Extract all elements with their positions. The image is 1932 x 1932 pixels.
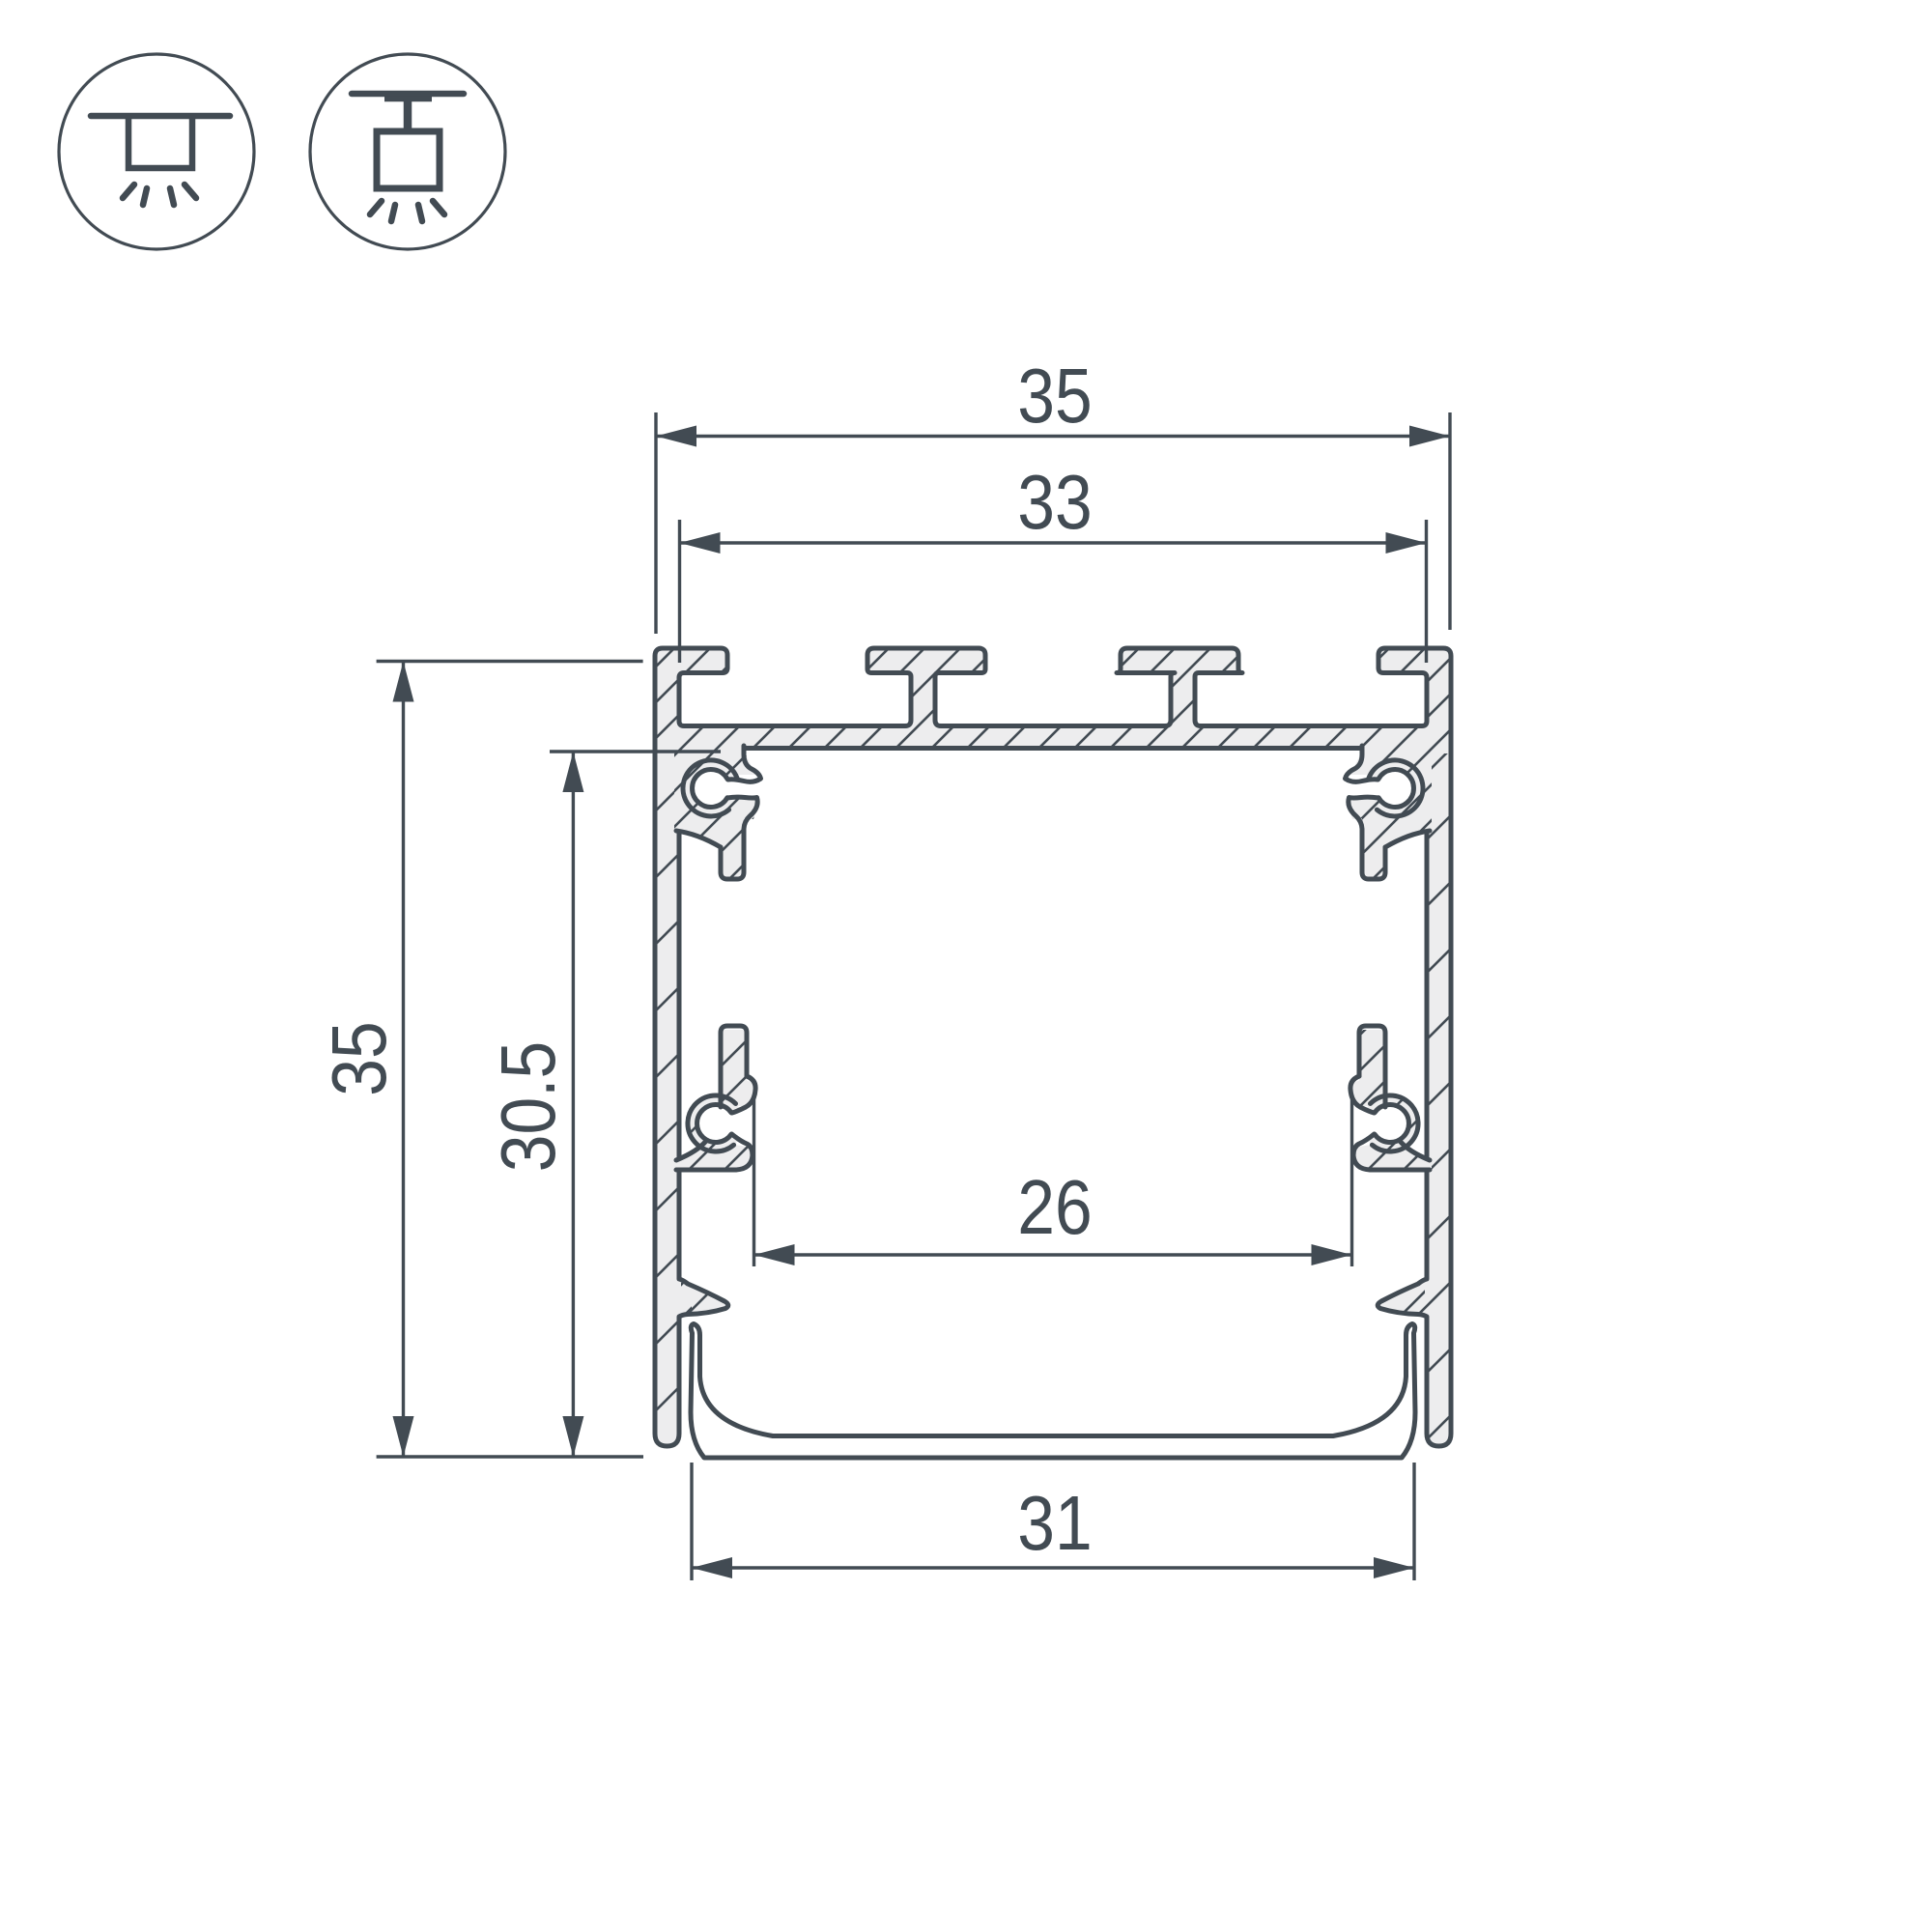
svg-text:35: 35 — [315, 1021, 402, 1095]
svg-text:35: 35 — [1017, 352, 1092, 439]
svg-text:31: 31 — [1017, 1479, 1092, 1566]
svg-text:30.5: 30.5 — [484, 1041, 571, 1172]
svg-text:33: 33 — [1017, 458, 1092, 545]
svg-text:26: 26 — [1017, 1163, 1092, 1250]
